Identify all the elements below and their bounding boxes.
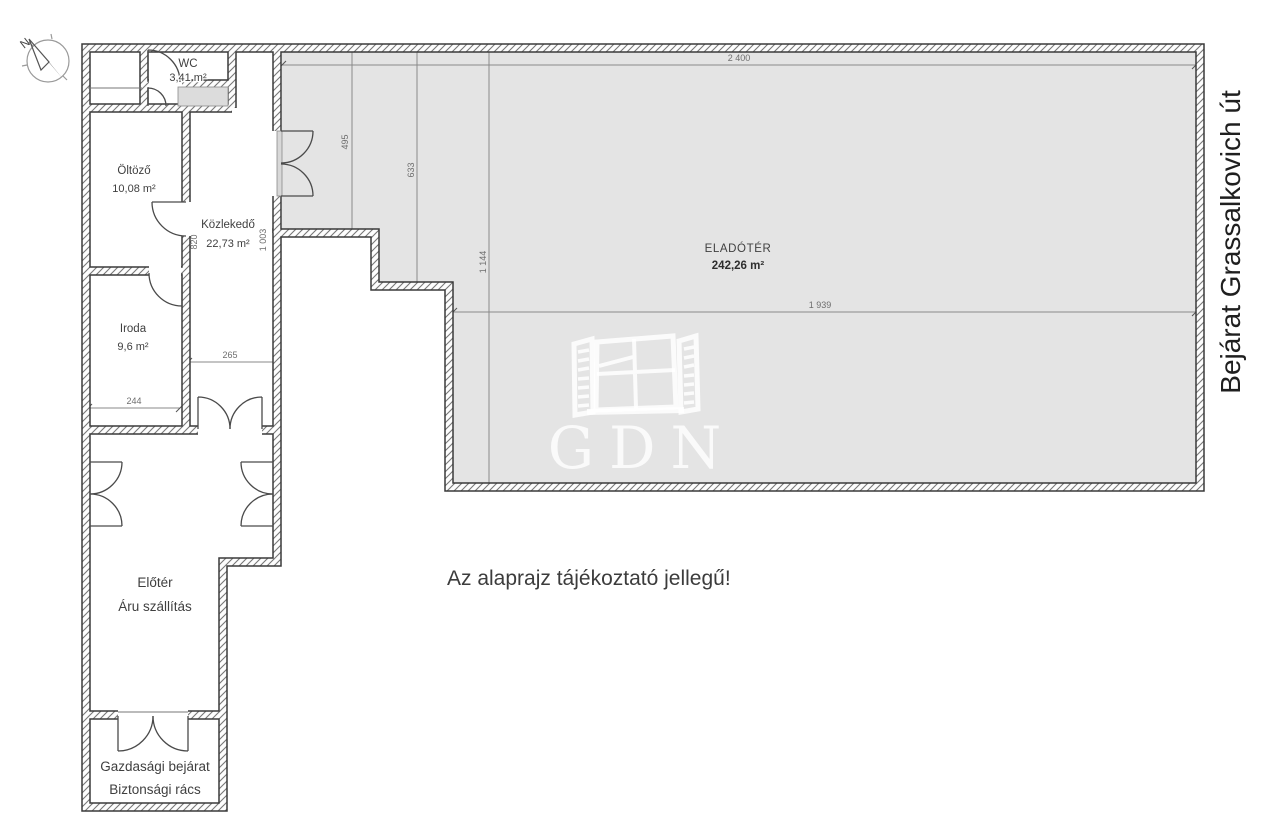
plan-note: Az alaprajz tájékoztató jellegű! — [447, 567, 731, 590]
room-label-gazdasagi-line2: Biztonsági rács — [109, 782, 201, 797]
dim-sales-top-width: 2 400 — [728, 53, 751, 63]
dim-sales-depth-mid: 633 — [406, 162, 416, 177]
room-label-kozlekedo: Közlekedő — [201, 219, 255, 231]
dim-sales-depth-right: 1 144 — [478, 251, 488, 274]
room-area-wc: 3,41 m² — [169, 72, 207, 84]
room-label-eloter-line2: Áru szállítás — [118, 599, 192, 614]
shower-tray — [178, 87, 228, 106]
room-area-iroda: 9,6 m² — [117, 341, 149, 353]
room-area-oltozo: 10,08 m² — [112, 183, 156, 195]
room-label-iroda: Iroda — [120, 323, 147, 335]
dim-iroda-width: 244 — [126, 396, 141, 406]
dim-sales-depth-left: 495 — [340, 134, 350, 149]
dim-corridor-length-right: 1 003 — [258, 229, 268, 252]
floorplan-drawing: GDN 2 400 1 939 495 633 1 144 820 1 003 … — [0, 0, 1280, 828]
room-label-oltozo: Öltöző — [117, 165, 150, 177]
room-area-kozlekedo: 22,73 m² — [206, 238, 250, 250]
room-area-eladoter: 242,26 m² — [712, 260, 765, 272]
room-label-wc: WC — [178, 58, 197, 70]
dim-corridor-width: 265 — [222, 350, 237, 360]
street-entrance-label: Bejárat Grassalkovich út — [1215, 90, 1246, 394]
compass-north-icon: N — [17, 34, 69, 82]
floorplan-page: GDN 2 400 1 939 495 633 1 144 820 1 003 … — [0, 0, 1280, 828]
room-label-eladoter: ELADÓTÉR — [705, 242, 772, 255]
room-label-eloter: Előtér — [137, 575, 173, 590]
room-label-gazdasagi: Gazdasági bejárat — [100, 759, 210, 774]
watermark-text: GDN — [548, 414, 737, 482]
dim-sales-inner-width: 1 939 — [809, 300, 832, 310]
